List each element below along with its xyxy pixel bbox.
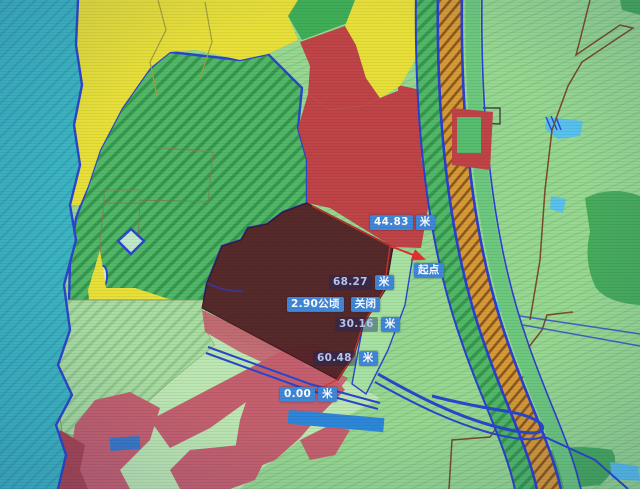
measurement-unit: 米 [375, 275, 394, 290]
measurement-unit: 米 [359, 351, 378, 366]
measurement-unit: 米 [318, 387, 337, 402]
blue-rect-small [110, 436, 141, 451]
map-graphics [0, 0, 640, 489]
area-label: 2.90公顷 关闭 [287, 297, 380, 312]
measurement-value: 30.16 [335, 317, 378, 332]
measurement-label-60: 60.48 米 [313, 351, 378, 366]
area-value: 2.90公顷 [287, 297, 344, 312]
measurement-value: 44.83 [370, 215, 413, 230]
measurement-value: 68.27 [329, 275, 372, 290]
measurement-label-68: 68.27 米 [329, 275, 394, 290]
red-block-right [452, 108, 493, 170]
measurement-label-0: 0.00 米 [280, 387, 337, 402]
start-point-marker: 起点 [414, 263, 444, 278]
measurement-value: 60.48 [313, 351, 356, 366]
measurement-unit: 米 [381, 317, 400, 332]
measurement-unit: 米 [416, 215, 435, 230]
measurement-label-30: 30.16 米 [335, 317, 400, 332]
measurement-label-44: 44.83 米 [370, 215, 435, 230]
map-canvas[interactable]: 44.83 米 起点 68.27 米 2.90公顷 关闭 30.16 米 60.… [0, 0, 640, 489]
start-point-label: 起点 [414, 263, 444, 278]
close-button[interactable]: 关闭 [351, 297, 381, 312]
measurement-value: 0.00 [280, 387, 315, 402]
